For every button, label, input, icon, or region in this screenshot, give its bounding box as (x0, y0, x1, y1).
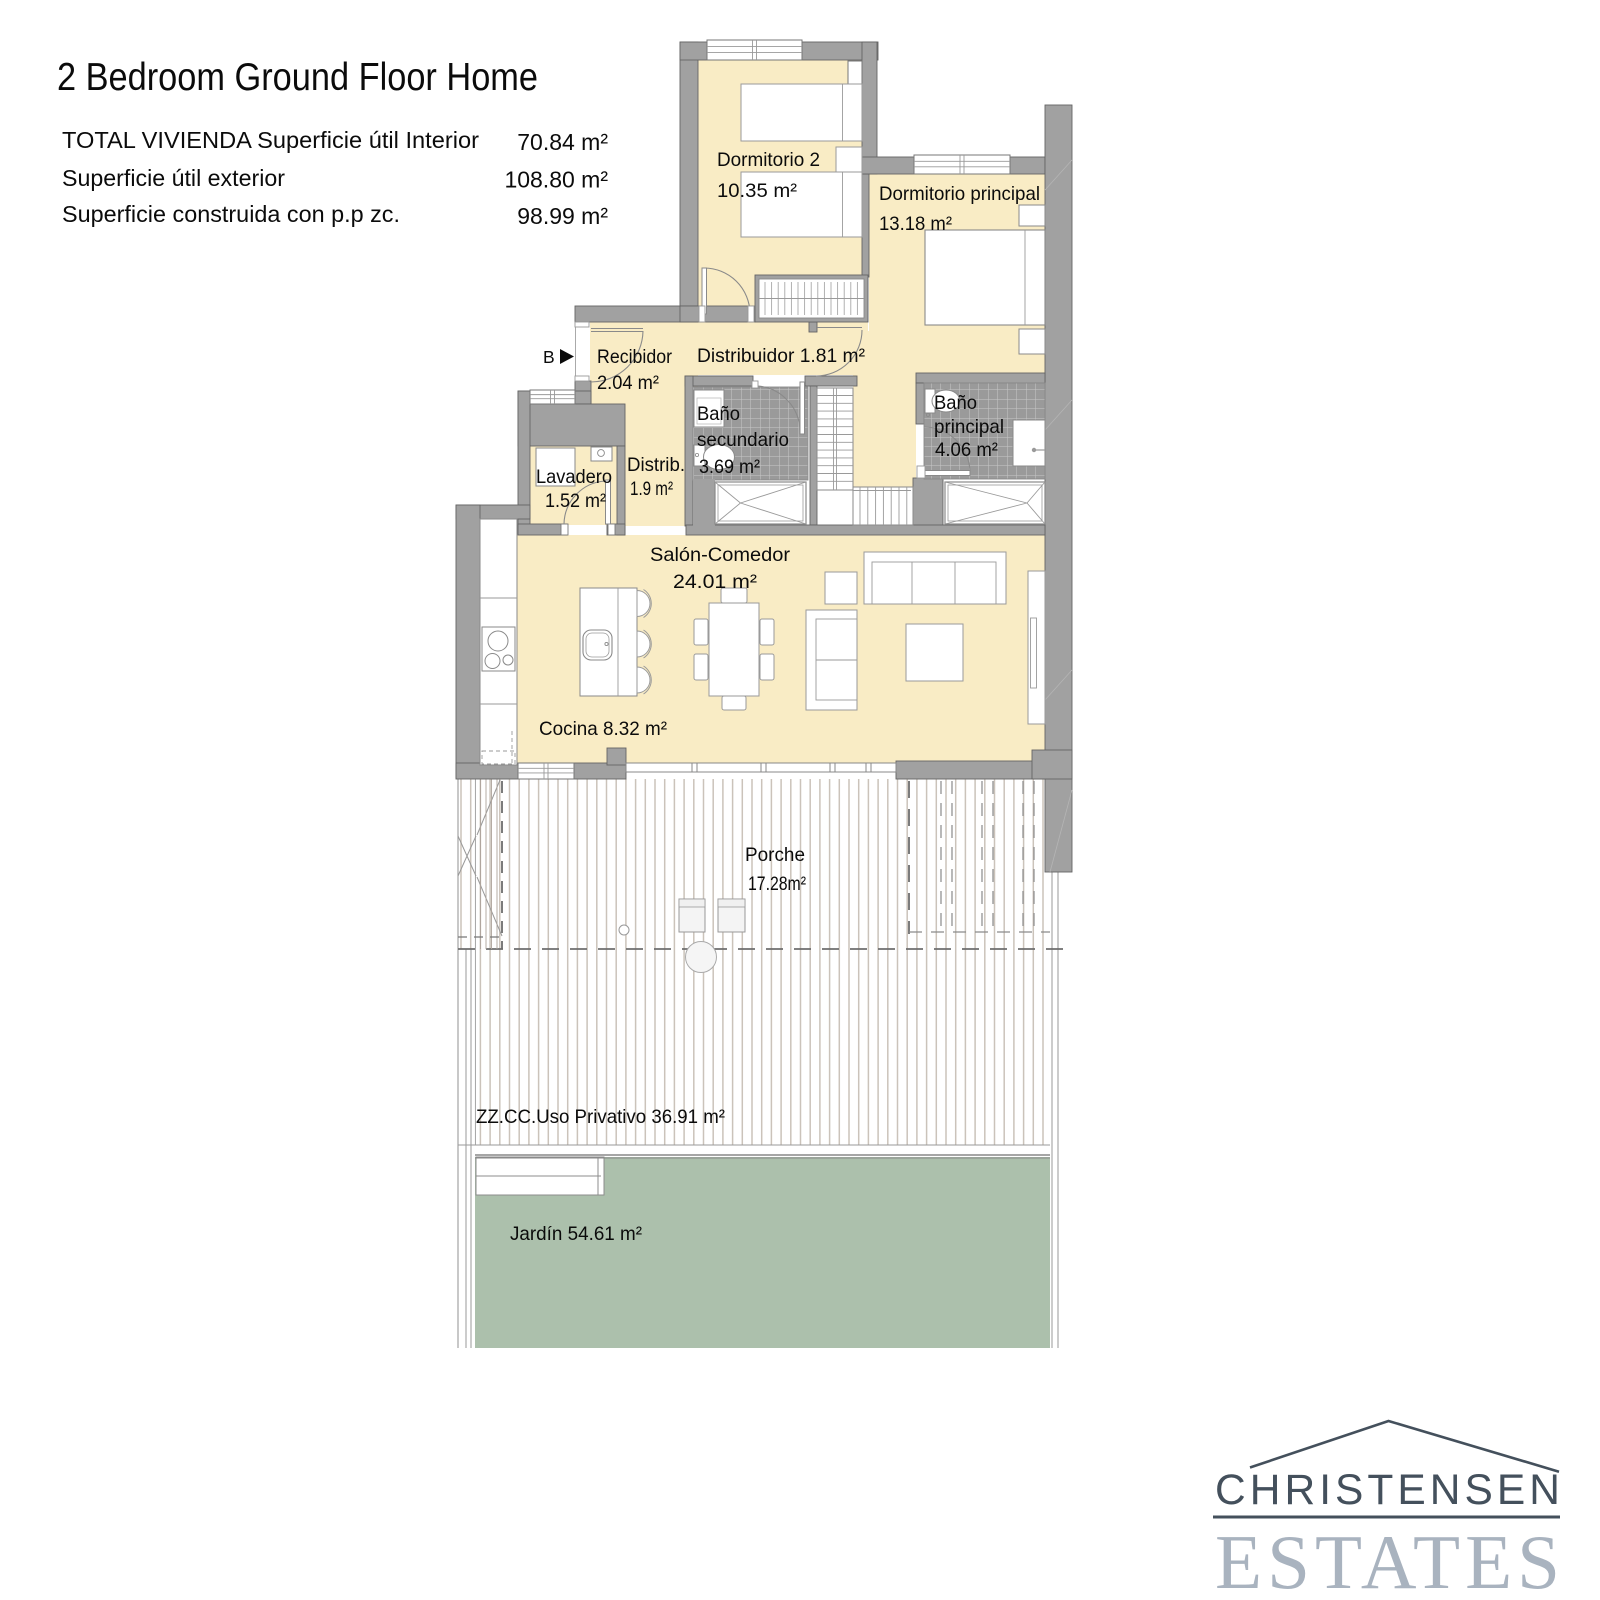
svg-text:24.01 m²: 24.01 m² (673, 571, 758, 593)
svg-text:1.9 m²: 1.9 m² (630, 478, 673, 500)
svg-text:Dormitorio principal: Dormitorio principal (879, 183, 1040, 205)
svg-text:principal: principal (934, 416, 1004, 438)
svg-text:Distribuidor 1.81 m²: Distribuidor 1.81 m² (697, 345, 865, 367)
svg-text:10.35 m²: 10.35 m² (717, 180, 798, 202)
svg-text:Distrib.: Distrib. (627, 454, 685, 476)
svg-text:B: B (543, 347, 555, 367)
svg-text:70.84 m²: 70.84 m² (517, 129, 608, 155)
svg-text:ZZ.CC.Uso Privativo 36.91 m²: ZZ.CC.Uso Privativo 36.91 m² (476, 1106, 725, 1128)
svg-text:4.06 m²: 4.06 m² (935, 439, 998, 461)
svg-text:Superficie construida con p.p: Superficie construida con p.p zc. (62, 201, 400, 227)
svg-text:17.28m²: 17.28m² (748, 873, 806, 895)
svg-text:98.99 m²: 98.99 m² (517, 203, 608, 229)
svg-text:13.18 m²: 13.18 m² (879, 213, 952, 235)
svg-text:Jardín 54.61 m²: Jardín 54.61 m² (510, 1223, 642, 1245)
svg-text:secundario: secundario (697, 429, 789, 451)
svg-text:Baño: Baño (934, 392, 977, 414)
svg-text:Baño: Baño (697, 403, 740, 425)
svg-text:Superficie útil exterior: Superficie útil exterior (62, 165, 285, 191)
svg-text:2.04 m²: 2.04 m² (597, 372, 659, 394)
svg-text:108.80 m²: 108.80 m² (504, 167, 608, 193)
svg-text:Salón-Comedor: Salón-Comedor (650, 544, 791, 566)
svg-text:CHRISTENSEN: CHRISTENSEN (1215, 1467, 1560, 1514)
svg-text:2 Bedroom Ground Floor Home: 2 Bedroom Ground Floor Home (57, 56, 538, 99)
svg-text:3.69 m²: 3.69 m² (699, 456, 760, 478)
svg-text:ESTATES: ESTATES (1215, 1519, 1560, 1600)
svg-text:Dormitorio 2: Dormitorio 2 (717, 149, 820, 171)
svg-text:Lavadero: Lavadero (536, 466, 612, 488)
svg-text:TOTAL VIVIENDA Superficie útil: TOTAL VIVIENDA Superficie útil Interior (62, 127, 479, 153)
svg-text:Recibidor: Recibidor (597, 346, 672, 368)
svg-text:1.52 m²: 1.52 m² (545, 490, 606, 512)
svg-text:Porche: Porche (745, 844, 805, 866)
svg-text:Cocina 8.32 m²: Cocina 8.32 m² (539, 718, 667, 740)
